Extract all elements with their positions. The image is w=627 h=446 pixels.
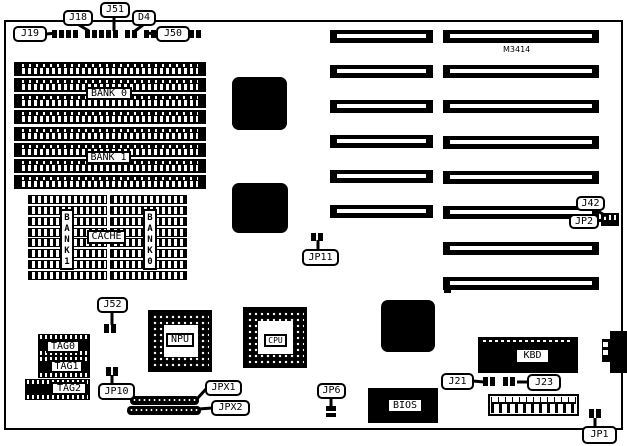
bios-text: BIOS <box>393 401 417 411</box>
callout-jp6-label: JP6 <box>322 386 340 396</box>
kbd-label: KBD <box>516 349 549 363</box>
cpu-label: CPU <box>264 334 287 347</box>
cache-bank1-vertical-label: BANK1 <box>60 209 74 270</box>
callout-jp1-label: JP1 <box>590 430 608 440</box>
callout-j52: J52 <box>97 297 128 313</box>
callout-d4: D4 <box>132 10 156 26</box>
motherboard-diagram: J19 J18 J51 D4 J50 BANK 0 BANK 1 BANK1 B… <box>0 0 627 446</box>
callout-j51: J51 <box>100 2 130 18</box>
callout-jpx1: JPX1 <box>205 380 242 396</box>
tag0-text: TAG0 <box>51 342 75 352</box>
callout-j52-label: J52 <box>103 300 121 310</box>
callout-jpx2: JPX2 <box>211 400 250 416</box>
callout-j19: J19 <box>13 26 47 42</box>
callout-jp6: JP6 <box>317 383 346 399</box>
cache-bank0-text: BANK0 <box>147 213 152 267</box>
callout-jp2-label: JP2 <box>575 217 593 227</box>
tag1-text: TAG1 <box>54 362 78 372</box>
tag1-label: TAG1 <box>50 360 83 373</box>
callout-jp11: JP11 <box>302 249 339 266</box>
kbd-text: KBD <box>523 351 541 361</box>
callout-j42: J42 <box>576 196 605 211</box>
callout-j23: J23 <box>527 374 561 391</box>
callout-jpx1-label: JPX1 <box>211 383 235 393</box>
callout-jp1: JP1 <box>582 426 617 444</box>
tag0-label: TAG0 <box>46 340 80 353</box>
callout-j18-label: J18 <box>69 13 87 23</box>
callout-jp11-label: JP11 <box>308 253 332 263</box>
tag2-label: TAG2 <box>51 382 87 395</box>
callout-jp10: JP10 <box>98 383 135 400</box>
callout-j21-label: J21 <box>448 377 466 387</box>
callout-j50: J50 <box>156 26 190 42</box>
bank0-label: BANK 0 <box>86 87 132 100</box>
callout-j18: J18 <box>63 10 93 26</box>
callout-d4-label: D4 <box>138 13 150 23</box>
cache-text: CACHE <box>91 232 121 242</box>
callout-jp2: JP2 <box>569 214 599 229</box>
callout-j23-label: J23 <box>535 378 553 388</box>
cache-bank0-vertical-label: BANK0 <box>143 209 157 270</box>
cache-bank1-text: BANK1 <box>64 213 69 267</box>
callout-jp10-label: JP10 <box>104 387 128 397</box>
npu-text: NPU <box>171 335 189 345</box>
cache-label: CACHE <box>87 230 126 244</box>
callout-j19-label: J19 <box>21 29 39 39</box>
bank0-text: BANK 0 <box>91 89 127 99</box>
bank1-text: BANK 1 <box>90 153 126 163</box>
callout-jpx2-label: JPX2 <box>218 403 242 413</box>
bios-label: BIOS <box>388 399 422 412</box>
cpu-text: CPU <box>268 336 282 346</box>
callout-j21: J21 <box>441 373 474 390</box>
callout-j42-label: J42 <box>581 199 599 209</box>
tag2-text: TAG2 <box>57 384 81 394</box>
callout-j50-label: J50 <box>164 29 182 39</box>
npu-label: NPU <box>166 333 194 347</box>
bank1-label: BANK 1 <box>86 151 131 164</box>
callout-j51-label: J51 <box>106 5 124 15</box>
